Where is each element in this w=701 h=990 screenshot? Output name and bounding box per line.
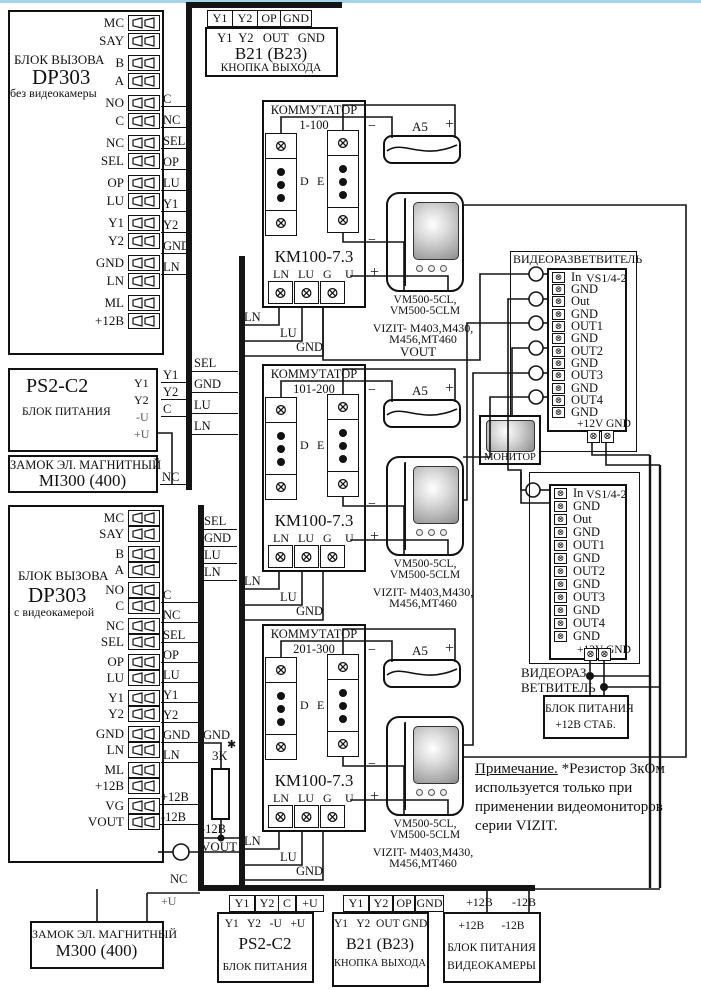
- wire-label: GND: [192, 376, 238, 393]
- wire-label: NC: [161, 113, 188, 128]
- terminal-row: SAY: [10, 527, 162, 542]
- clamp-terminal-icon: [128, 73, 160, 89]
- screw-terminal-icon: ⊗: [328, 207, 358, 232]
- handset-screen-icon: [413, 202, 459, 260]
- wire-label: SEL: [161, 628, 201, 643]
- connector-strip-e: ⊗ ⊗: [327, 654, 359, 757]
- bus-pin: +U: [296, 895, 324, 912]
- terminal-label: +12В: [95, 313, 124, 329]
- wire-label: LU: [192, 397, 238, 414]
- bus2-wire-labels: SELGNDLULN: [202, 513, 237, 581]
- splitter2-chip: VS1/4-2: [586, 488, 627, 501]
- jumper-pins-icon: [328, 156, 358, 207]
- clamp-terminal-icon: [128, 598, 160, 614]
- resistor-asterisk: ✱: [227, 740, 236, 752]
- strip-label-e: E: [317, 439, 324, 452]
- minus12-label: -12В: [201, 823, 226, 836]
- screw-terminal-icon: ⊗: [294, 281, 319, 304]
- wire-ln: LN: [244, 575, 261, 588]
- splitter-pin-label: GND: [573, 629, 600, 644]
- bus-pin: Y1: [229, 895, 255, 912]
- battery-plus: +: [445, 117, 454, 134]
- handset-plus: +: [370, 789, 379, 806]
- handset-minus: −: [368, 234, 376, 249]
- terminal-row: OP: [10, 654, 162, 669]
- wire-gnd: GND: [296, 605, 323, 618]
- exit-bottom-model: B21 (B23): [334, 937, 426, 954]
- screw-terminal-icon: ⊗: [552, 358, 565, 369]
- wire-label: SEL: [161, 134, 188, 149]
- clamp-terminal-icon: [128, 153, 160, 169]
- terminal-row: +12В: [10, 779, 162, 794]
- screw-terminal-icon: ⊗: [552, 309, 565, 320]
- screw-terminal-icon: ⊗: [294, 805, 319, 828]
- wire-lu: LU: [280, 851, 297, 864]
- screw-terminal-icon: ⊗: [266, 734, 296, 759]
- terminal-row: ML: [10, 762, 162, 777]
- screw-terminal-icon: ⊗: [554, 514, 567, 525]
- compat-models-2: M456,MT460: [368, 856, 478, 871]
- bus-pin: OP: [393, 895, 415, 912]
- jumper-pins-icon: [266, 683, 296, 734]
- bus-pin: GND: [415, 895, 444, 912]
- handset-model-2: VM500-5CLM: [370, 305, 480, 317]
- terminal-label: +12В: [95, 778, 124, 794]
- terminal-label: Y2: [108, 233, 124, 249]
- clamp-terminal-icon: [128, 175, 160, 191]
- screw-terminal-icon: ⊗: [320, 805, 345, 828]
- wire-label: OP: [161, 648, 201, 663]
- resistor-label: 3К: [212, 749, 227, 763]
- battery-plus: +: [445, 381, 454, 398]
- terminal-label: LU: [107, 670, 124, 686]
- screw-terminal-icon: ⊗: [554, 488, 567, 499]
- splitter1-chip: VS1/4-2: [586, 272, 627, 285]
- terminal-row: SEL: [10, 153, 162, 169]
- screw-terminal-icon: ⊗: [266, 210, 296, 235]
- clamp-terminal-icon: [128, 634, 160, 650]
- psu1-pin-y1: Y1: [134, 377, 149, 390]
- terminal-label: Y2: [108, 706, 124, 722]
- handset-handle-icon: [404, 462, 407, 550]
- handset-plus: +: [370, 529, 379, 546]
- clamp-terminal-icon: [128, 814, 160, 830]
- terminal-label: Y1: [108, 215, 124, 231]
- bus-pin: +12В: [466, 895, 504, 910]
- wire-label: NC: [160, 470, 190, 485]
- handset-handle-icon: [404, 722, 407, 810]
- screw-terminal-icon: ⊗: [587, 430, 600, 443]
- terminal-row: OP: [10, 175, 162, 191]
- terminal-row: MC: [10, 510, 162, 525]
- lock2-model: M300 (400): [32, 942, 161, 960]
- psu2-name: БЛОК ПИТАНИЯ: [219, 962, 311, 974]
- battery-label: A5: [412, 384, 428, 398]
- wire-label: GND: [202, 530, 237, 547]
- compat-models-2: M456,MT460: [368, 596, 478, 611]
- battery-minus: −: [368, 384, 376, 399]
- screw-terminal-icon: ⊗: [554, 592, 567, 603]
- call-block-dp303-2: БЛОК ВЫЗОВА DP303 с видеокамерой MC SAY: [8, 505, 164, 863]
- camera-psu-block: +12В -12В БЛОК ПИТАНИЯ ВИДЕОКАМЕРЫ: [443, 912, 541, 983]
- clamp-terminal-icon: [128, 15, 160, 31]
- pin-ln: LN: [273, 531, 289, 546]
- dp2-power-labels: +12В-12В: [159, 790, 201, 830]
- psu2-pins: Y1 Y2 -U +U: [219, 918, 311, 930]
- battery-wave-icon: [385, 401, 459, 426]
- wire-gnd: GND: [296, 865, 323, 878]
- battery-wave-icon: [385, 137, 459, 162]
- wire-label: Y1: [161, 368, 190, 383]
- screw-terminal-icon: ⊗: [328, 731, 358, 756]
- vout2-label: VOUT: [201, 840, 237, 854]
- screw-terminal-icon: ⊗: [554, 501, 567, 512]
- psu1-pin-y2: Y2: [134, 394, 149, 407]
- bus-pin: Y2: [255, 895, 279, 912]
- wire-label: +12В: [159, 790, 201, 805]
- terminal-row: B: [10, 546, 162, 561]
- psu-block-2: Y1 Y2 -U +U PS2-C2 БЛОК ПИТАНИЯ: [217, 912, 314, 983]
- bus-pin-y1: Y1: [207, 10, 233, 27]
- bus1-wire-labels: SELGNDLULN: [192, 355, 238, 439]
- lock2-name: ЗАМОК ЭЛ. МАГНИТНЫЙ: [32, 928, 161, 941]
- battery-a5: [383, 659, 461, 688]
- wire-label: C: [161, 588, 201, 603]
- handset-buttons-icon: [416, 789, 447, 796]
- terminal-label: B: [115, 546, 124, 562]
- lock1-nc-label: NC: [160, 470, 190, 485]
- connector-strip-e: ⊗ ⊗: [327, 130, 359, 233]
- handset-plus: +: [370, 265, 379, 282]
- pin-u: U: [345, 531, 354, 546]
- wire-label: C: [161, 402, 190, 417]
- psu-block-1: PS2-C2 БЛОК ПИТАНИЯ Y1 Y2 -U +U: [8, 368, 158, 452]
- splitter-pin-row: ⊗ GND: [551, 630, 625, 643]
- plus-u-bottom-label: +U: [161, 895, 176, 908]
- screw-terminal-icon: ⊗: [268, 545, 293, 568]
- terminal-row: Y1: [10, 215, 162, 231]
- screw-terminal-icon: ⊗: [552, 333, 565, 344]
- video-monitor-handset: [386, 192, 464, 292]
- psu1-pin-minus-u: -U: [136, 411, 149, 424]
- commutator-title: КОММУТАТОР: [262, 103, 366, 118]
- splitter1-title: ВИДЕОРАЗВЕТВИТЕЛЬ: [513, 253, 642, 266]
- lock-block-1: ЗАМОК ЭЛ. МАГНИТНЫЙ MI300 (400): [8, 455, 158, 493]
- clamp-terminal-icon: [128, 582, 160, 598]
- wire-label: GND: [161, 239, 188, 254]
- exit-button-block-bottom: Y1 Y2 OUT GND B21 (B23) КНОПКА ВЫХОДА: [332, 912, 429, 987]
- clamp-terminal-icon: [128, 778, 160, 794]
- exit-bottom-pins: Y1 Y2 OUT GND: [334, 918, 426, 930]
- terminal-label: OP: [107, 175, 124, 191]
- screw-terminal-icon: ⊗: [328, 655, 358, 680]
- terminal-label: B: [115, 55, 124, 71]
- bus-pin: -12В: [512, 895, 546, 910]
- exit-bottom-name: КНОПКА ВЫХОДА: [334, 958, 426, 969]
- wire-label: C: [161, 92, 188, 107]
- terminal-label: SAY: [99, 33, 124, 49]
- clamp-terminal-icon: [128, 618, 160, 634]
- clamp-terminal-icon: [128, 95, 160, 111]
- handset-model-2: VM500-5CLM: [370, 829, 480, 841]
- battery-wave-icon: [385, 661, 459, 686]
- psu2-model: PS2-C2: [219, 935, 311, 953]
- screw-terminal-icon: ⊗: [554, 631, 567, 642]
- terminal-label: ML: [105, 295, 125, 311]
- screw-terminal-icon: ⊗: [598, 648, 611, 661]
- resistor-3k: [211, 768, 230, 820]
- splitter1-box: VS1/4-2 ⊗ In ⊗ GND ⊗ Out ⊗: [547, 268, 627, 432]
- screw-terminal-icon: ⊗: [266, 474, 296, 499]
- screw-terminal-icon: ⊗: [552, 284, 565, 295]
- terminal-row: VG: [10, 798, 162, 813]
- screw-terminal-icon: ⊗: [552, 407, 565, 418]
- psu1-model: PS2-C2: [26, 376, 88, 397]
- dp2-title: БЛОК ВЫЗОВА: [18, 569, 108, 583]
- screw-terminal-icon: ⊗: [584, 648, 597, 661]
- strip-label-e: E: [317, 699, 324, 712]
- pin-u: U: [345, 267, 354, 282]
- battery-label: A5: [412, 644, 428, 658]
- pin-g: G: [323, 791, 332, 806]
- terminal-label: LU: [107, 193, 124, 209]
- terminal-row: LU: [10, 671, 162, 686]
- connector-strip-d: ⊗ ⊗: [265, 397, 297, 500]
- terminal-label: LN: [107, 742, 124, 758]
- dp2-terminal-strip: MC SAY B: [10, 507, 162, 830]
- screw-terminal-icon: ⊗: [268, 805, 293, 828]
- nc-bottom-label: NC: [170, 873, 187, 886]
- wire-label: LN: [192, 418, 238, 435]
- battery-minus: −: [368, 120, 376, 135]
- clamp-terminal-icon: [128, 526, 160, 542]
- clamp-terminal-icon: [128, 113, 160, 129]
- psu1-wire-labels: Y1Y2C: [161, 368, 190, 419]
- wire-label: LN: [161, 748, 201, 763]
- handset-minus: −: [368, 758, 376, 773]
- screw-terminal-icon: ⊗: [554, 566, 567, 577]
- terminal-label: C: [115, 113, 124, 129]
- handset-model-2: VM500-5CLM: [370, 569, 480, 581]
- terminal-row: LU: [10, 193, 162, 209]
- strip-label-d: D: [300, 699, 309, 712]
- clamp-terminal-icon: [128, 510, 160, 526]
- note-text: Примечание. *Резистор 3кОм используется …: [475, 760, 693, 836]
- screw-terminal-icon: ⊗: [554, 605, 567, 616]
- jumper-pins-icon: [328, 420, 358, 471]
- jumper-pins-icon: [328, 680, 358, 731]
- pin-ln: LN: [273, 267, 289, 282]
- handset-minus: −: [368, 498, 376, 513]
- psu1-name: БЛОК ПИТАНИЯ: [22, 406, 111, 418]
- bus-pin: Y1: [343, 895, 369, 912]
- pin-g: G: [323, 531, 332, 546]
- screw-terminal-icon: ⊗: [554, 579, 567, 590]
- battery-a5: [383, 399, 461, 428]
- terminal-row: Y1: [10, 690, 162, 705]
- clamp-terminal-icon: [128, 273, 160, 289]
- terminal-row: GND: [10, 255, 162, 271]
- cam-psu-name2: ВИДЕОКАМЕРЫ: [445, 960, 538, 972]
- monitor-screen-icon: [486, 420, 535, 452]
- splitter2-pin-rows: ⊗ In ⊗ GND ⊗ Out ⊗ GND: [551, 486, 625, 643]
- wire-label: SEL: [202, 513, 237, 530]
- terminal-label: OP: [107, 654, 124, 670]
- screw-terminal-icon: ⊗: [266, 658, 296, 683]
- wire-ln: LN: [244, 311, 261, 324]
- terminal-row: NC: [10, 135, 162, 151]
- monitor-block: МОНИТОР: [479, 415, 541, 465]
- call-block-dp303-1: БЛОК ВЫЗОВА DP303 без видеокамеры MC SAY: [8, 10, 164, 355]
- splitter2-box: VS1/4-2 ⊗ In ⊗ GND ⊗ Out ⊗: [549, 484, 627, 660]
- clamp-terminal-icon: [128, 55, 160, 71]
- screw-terminal-icon: ⊗: [268, 281, 293, 304]
- commutator-title: КОММУТАТОР: [262, 627, 366, 642]
- commutator-model: КМ100-7.3: [262, 771, 366, 791]
- wire-label: LU: [202, 547, 237, 564]
- clamp-terminal-icon: [128, 798, 160, 814]
- terminal-label: NO: [105, 582, 124, 598]
- screw-terminal-icon: ⊗: [554, 618, 567, 629]
- terminal-label: NC: [106, 135, 124, 151]
- clamp-terminal-icon: [128, 193, 160, 209]
- stab-psu-line1: БЛОК ПИТАНИЯ: [545, 703, 626, 715]
- terminal-row: ML: [10, 295, 162, 311]
- stab-psu-line2: +12В СТАБ.: [545, 719, 626, 731]
- clamp-terminal-icon: [128, 690, 160, 706]
- monitor-label: МОНИТОР: [481, 452, 539, 463]
- note-label: Примечание.: [475, 761, 558, 777]
- connector-strip-e: ⊗ ⊗: [327, 394, 359, 497]
- terminal-row: LN: [10, 743, 162, 758]
- wire-gnd: GND: [296, 341, 323, 354]
- terminal-label: GND: [96, 726, 124, 742]
- terminal-row: C: [10, 113, 162, 129]
- screw-terminal-icon: ⊗: [320, 281, 345, 304]
- clamp-terminal-icon: [128, 215, 160, 231]
- terminal-row: GND: [10, 726, 162, 741]
- wire-label: LU: [161, 668, 201, 683]
- terminal-label: GND: [96, 255, 124, 271]
- clamp-terminal-icon: [128, 255, 160, 271]
- terminal-label: VOUT: [88, 814, 124, 830]
- wire-label: LN: [161, 260, 188, 275]
- screw-terminal-icon: ⊗: [266, 398, 296, 423]
- pin-lu: LU: [298, 267, 314, 282]
- bus-pin: C: [278, 895, 296, 912]
- screw-terminal-icon: ⊗: [601, 430, 614, 443]
- handset-handle-icon: [404, 198, 407, 286]
- cam-psu-pins: +12В -12В: [445, 920, 538, 932]
- battery-plus: +: [445, 641, 454, 658]
- battery-label: A5: [412, 120, 428, 134]
- screw-terminal-icon: ⊗: [554, 527, 567, 538]
- terminal-label: MC: [104, 15, 124, 31]
- terminal-label: NO: [105, 95, 124, 111]
- pin-lu: LU: [298, 531, 314, 546]
- psu1-pin-plus-u: +U: [134, 428, 149, 441]
- clamp-terminal-icon: [128, 726, 160, 742]
- terminal-label: C: [115, 598, 124, 614]
- cam-psu-name1: БЛОК ПИТАНИЯ: [445, 942, 538, 954]
- terminal-row: VOUT: [10, 815, 162, 830]
- bus-pin: Y2: [369, 895, 393, 912]
- pin-lu: LU: [298, 791, 314, 806]
- dp2-variant: с видеокамерой: [14, 606, 94, 619]
- dp1-model: DP303: [32, 66, 90, 88]
- dp1-variant: без видеокамеры: [10, 87, 97, 100]
- wire-label: SEL: [192, 355, 238, 372]
- clamp-terminal-icon: [128, 135, 160, 151]
- terminal-row: LN: [10, 273, 162, 289]
- wire-label: NC: [161, 608, 201, 623]
- splitter1-power-label: +12V GND: [577, 418, 631, 430]
- terminal-label: ML: [105, 762, 125, 778]
- terminal-row: +12В: [10, 313, 162, 329]
- handset-screen-icon: [413, 726, 459, 784]
- commutator-title: КОММУТАТОР: [262, 367, 366, 382]
- wire-label: LN: [202, 564, 237, 581]
- screw-terminal-icon: ⊗: [320, 545, 345, 568]
- screw-terminal-icon: ⊗: [328, 131, 358, 156]
- connector-strip-d: ⊗ ⊗: [265, 657, 297, 760]
- terminal-label: SEL: [101, 153, 124, 169]
- stab-psu-block: БЛОК ПИТАНИЯ +12В СТАБ.: [543, 695, 629, 739]
- dp2-model: DP303: [28, 584, 86, 606]
- terminal-row: SEL: [10, 635, 162, 650]
- strip-label-d: D: [300, 175, 309, 188]
- clamp-terminal-icon: [128, 33, 160, 49]
- terminal-row: NC: [10, 618, 162, 633]
- pin-g: G: [323, 267, 332, 282]
- commutator-model: КМ100-7.3: [262, 511, 366, 531]
- terminal-label: LN: [107, 273, 124, 289]
- wire-label: Y2: [161, 218, 188, 233]
- terminal-label: SEL: [101, 634, 124, 650]
- screw-terminal-icon: ⊗: [554, 540, 567, 551]
- wire-label: GND: [161, 728, 201, 743]
- terminal-label: MC: [104, 510, 124, 526]
- splitter2-caption-2: ВЕТВИТЕЛЬ: [521, 681, 596, 695]
- connector-strip-d: ⊗ ⊗: [265, 133, 297, 236]
- wire-label: OP: [161, 155, 188, 170]
- wiring-diagram: БЛОК ВЫЗОВА DP303 без видеокамеры MC SAY: [0, 0, 701, 990]
- wire-lu: LU: [280, 327, 297, 340]
- wire-label: LU: [161, 176, 188, 191]
- jumper-pins-icon: [266, 423, 296, 474]
- clamp-terminal-icon: [128, 546, 160, 562]
- strip-label-e: E: [317, 175, 324, 188]
- terminal-label: VG: [105, 798, 124, 814]
- clamp-terminal-icon: [128, 742, 160, 758]
- wire-label: Y1: [161, 688, 201, 703]
- wire-ln: LN: [244, 835, 261, 848]
- pin-u: U: [345, 791, 354, 806]
- screw-terminal-icon: ⊗: [552, 296, 565, 307]
- screw-terminal-icon: ⊗: [328, 471, 358, 496]
- dp1-wire-labels: CNCSELOPLUY1Y2GNDLN: [161, 92, 188, 281]
- clamp-terminal-icon: [128, 706, 160, 722]
- screw-terminal-icon: ⊗: [554, 553, 567, 564]
- wire-label: Y2: [161, 385, 190, 400]
- screw-terminal-icon: ⊗: [552, 272, 565, 283]
- screw-terminal-icon: ⊗: [266, 134, 296, 159]
- splitter2-caption-1: ВИДЕОРАЗ-: [521, 666, 591, 680]
- wire-label: -12В: [159, 810, 201, 825]
- clamp-terminal-icon: [128, 562, 160, 578]
- terminal-row: SAY: [10, 33, 162, 49]
- vout-label: VOUT: [400, 345, 436, 359]
